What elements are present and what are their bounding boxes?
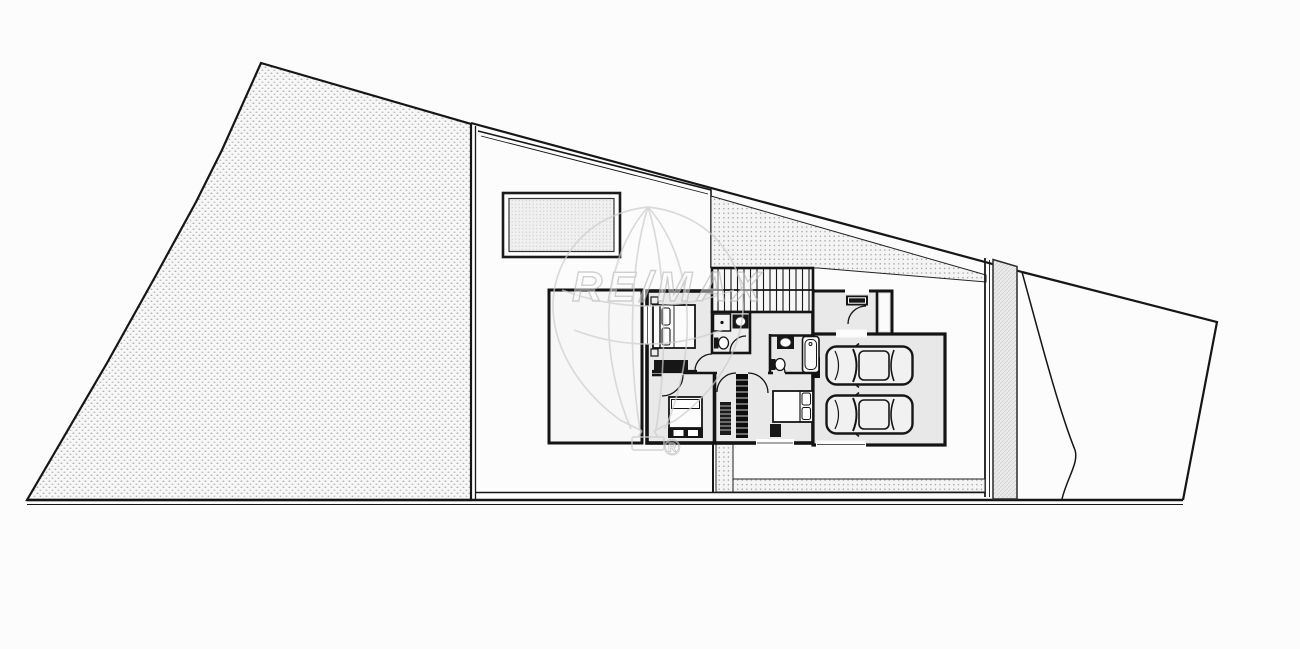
toilet: [771, 359, 785, 371]
entry-closet: [880, 294, 890, 331]
walkway-band-vertical: [716, 443, 733, 492]
entry-door-opening: [845, 288, 869, 294]
interior-staircase: [736, 374, 748, 438]
entry-mat: [846, 296, 868, 306]
car-1: [827, 344, 913, 388]
watermark-registered-symbol: ®: [664, 435, 680, 460]
walkway-band-horizontal: [733, 479, 985, 492]
garage-side-door-gap: [836, 330, 867, 338]
watermark-brand-text: RE/MAX: [572, 263, 765, 310]
bathtub: [803, 337, 820, 373]
toilet: [714, 337, 729, 349]
nightstand: [651, 349, 658, 356]
pool: [503, 193, 620, 257]
car-2: [827, 393, 913, 437]
driveway-strip: [993, 260, 1017, 500]
shower-drain: [720, 321, 723, 324]
sink-bowl: [780, 338, 791, 347]
nightstand: [770, 424, 781, 437]
pillow: [802, 393, 811, 405]
pillow: [802, 408, 811, 420]
site-plan-page: RE/MAX ®: [0, 0, 1300, 649]
bedroom-bottom-left-furniture: [668, 397, 703, 438]
double-bed: [773, 391, 813, 422]
wardrobe: [720, 402, 731, 435]
site-plan-drawing: RE/MAX ®: [0, 0, 1300, 649]
